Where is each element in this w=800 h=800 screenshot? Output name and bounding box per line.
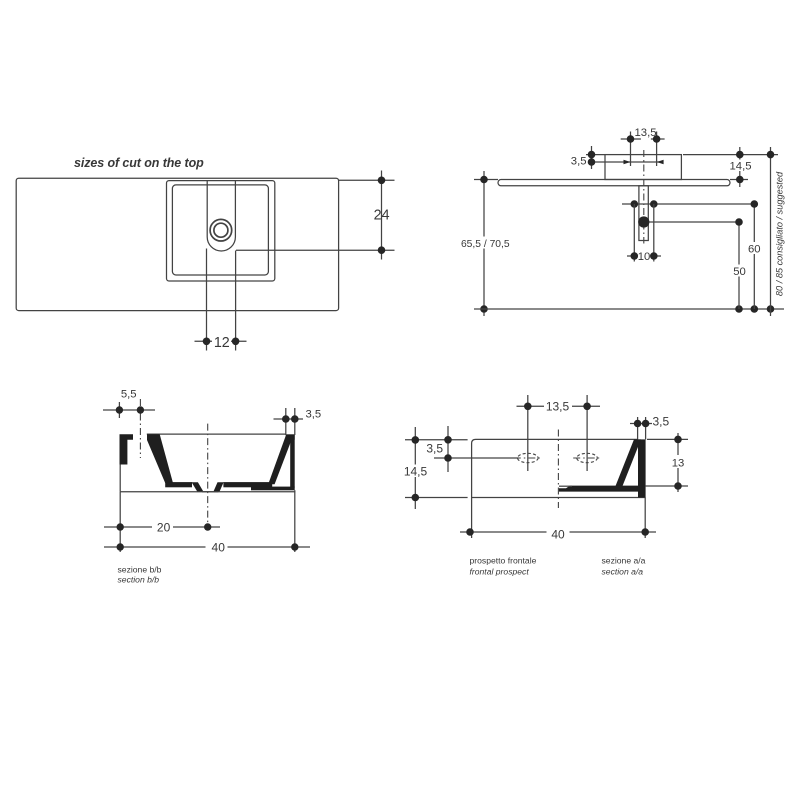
svg-text:sezione a/a: sezione a/a <box>602 556 646 566</box>
svg-text:50: 50 <box>733 266 746 278</box>
svg-text:3,5: 3,5 <box>306 408 322 420</box>
svg-text:13,5: 13,5 <box>635 127 657 139</box>
svg-text:section a/a: section a/a <box>602 566 644 576</box>
svg-text:section b/b: section b/b <box>118 574 160 584</box>
svg-text:20: 20 <box>157 521 171 535</box>
svg-text:14,5: 14,5 <box>404 465 428 479</box>
svg-text:13,5: 13,5 <box>546 399 570 413</box>
svg-text:13: 13 <box>672 458 685 470</box>
svg-text:3,5: 3,5 <box>571 156 587 168</box>
svg-text:65,5 / 70,5: 65,5 / 70,5 <box>461 239 510 250</box>
svg-text:10: 10 <box>638 251 651 263</box>
svg-text:24: 24 <box>374 208 390 224</box>
svg-text:40: 40 <box>551 528 565 542</box>
svg-text:14,5: 14,5 <box>730 161 752 173</box>
svg-text:60: 60 <box>748 244 761 256</box>
svg-text:3,5: 3,5 <box>653 414 670 428</box>
svg-text:sezione b/b: sezione b/b <box>118 565 162 575</box>
svg-text:prospetto frontale: prospetto frontale <box>470 556 537 566</box>
svg-text:5,5: 5,5 <box>121 389 137 401</box>
svg-text:frontal prospect: frontal prospect <box>470 567 530 577</box>
svg-text:80 / 85 consigliato / suggeste: 80 / 85 consigliato / suggested <box>775 171 785 296</box>
svg-text:sizes of cut on the top: sizes of cut on the top <box>74 156 204 170</box>
svg-text:3,5: 3,5 <box>426 441 443 455</box>
svg-text:12: 12 <box>214 335 230 351</box>
svg-text:40: 40 <box>212 541 226 555</box>
